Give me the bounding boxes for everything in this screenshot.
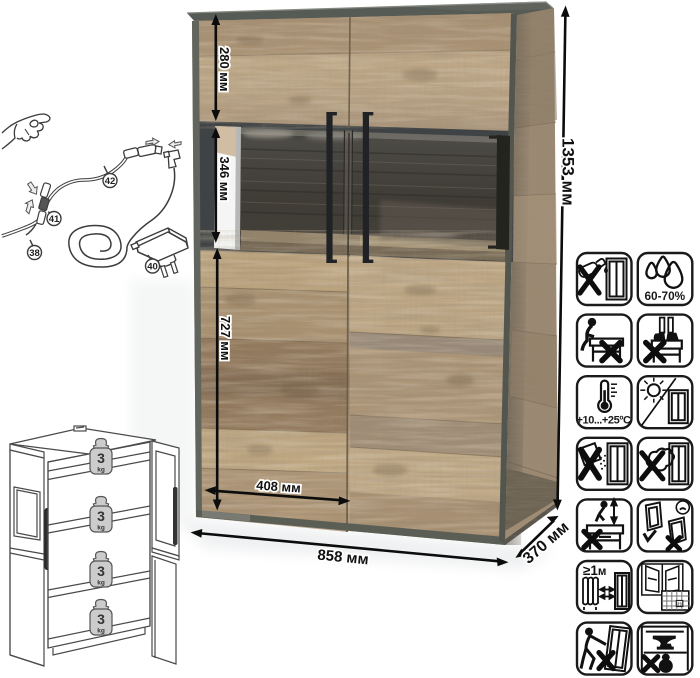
- svg-text:408 мм: 408 мм: [256, 478, 301, 496]
- svg-text:kg: kg: [97, 467, 105, 474]
- svg-text:21: 21: [677, 602, 683, 607]
- svg-text:280 мм: 280 мм: [217, 47, 232, 92]
- svg-text:40: 40: [147, 262, 158, 273]
- svg-text:1353 мм: 1353 мм: [559, 138, 578, 206]
- svg-text:346 мм: 346 мм: [217, 157, 232, 202]
- svg-text:727 мм: 727 мм: [218, 316, 233, 361]
- svg-text:41: 41: [49, 214, 60, 225]
- svg-text:858 мм: 858 мм: [317, 547, 370, 569]
- svg-text:42: 42: [105, 176, 116, 187]
- svg-text:≥1м: ≥1м: [583, 563, 606, 578]
- svg-text:38: 38: [29, 248, 40, 259]
- svg-text:60-70%: 60-70%: [644, 289, 685, 303]
- svg-text:3: 3: [97, 450, 105, 466]
- svg-text:+10...+25ºC: +10...+25ºC: [576, 415, 631, 427]
